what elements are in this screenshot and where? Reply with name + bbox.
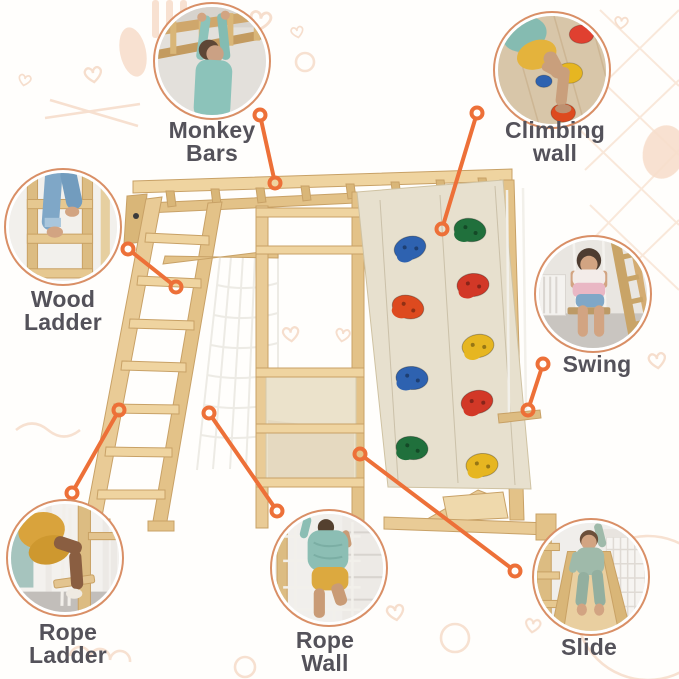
feature-label-slide: Slide bbox=[514, 636, 664, 659]
label-line: Ladder bbox=[0, 644, 143, 667]
feature-photo-rope-ladder bbox=[6, 499, 124, 617]
label-line: Bars bbox=[137, 142, 287, 165]
connector-climbing-wall bbox=[437, 108, 483, 235]
feature-label-wood-ladder: Wood Ladder bbox=[0, 288, 138, 335]
feature-label-climbing-wall: Climbing wall bbox=[480, 119, 630, 166]
feature-label-monkey-bars: Monkey Bars bbox=[137, 119, 287, 166]
connector-wood-ladder bbox=[123, 244, 182, 293]
swing-photo bbox=[539, 240, 647, 348]
climbing-wall-photo bbox=[498, 16, 606, 124]
label-line: Rope bbox=[296, 627, 354, 653]
label-line: Ladder bbox=[0, 311, 138, 334]
rope-wall-photo bbox=[275, 514, 383, 622]
rope-ladder-photo bbox=[11, 504, 119, 612]
feature-label-rope-wall: Rope Wall bbox=[250, 629, 400, 676]
label-line: Monkey bbox=[169, 117, 256, 143]
feature-label-rope-ladder: Rope Ladder bbox=[0, 621, 143, 668]
connector-rope-wall bbox=[204, 408, 283, 517]
feature-photo-rope-wall bbox=[270, 509, 388, 627]
label-line: Rope bbox=[39, 619, 97, 645]
feature-photo-swing bbox=[534, 235, 652, 353]
label-line: Swing bbox=[563, 351, 632, 377]
label-line: Slide bbox=[561, 634, 617, 660]
monkey-bars-photo bbox=[158, 7, 266, 115]
wood-ladder-photo bbox=[9, 173, 117, 281]
label-line: Climbing bbox=[505, 117, 605, 143]
slide-photo bbox=[537, 523, 645, 631]
label-line: Wall bbox=[250, 652, 400, 675]
feature-label-swing: Swing bbox=[522, 353, 672, 376]
feature-photo-climbing-wall bbox=[493, 11, 611, 129]
label-line: Wood bbox=[31, 286, 95, 312]
feature-photo-wood-ladder bbox=[4, 168, 122, 286]
product-features-infographic: Monkey Bars Climbing wall bbox=[0, 0, 679, 679]
feature-photo-slide bbox=[532, 518, 650, 636]
feature-photo-monkey-bars bbox=[153, 2, 271, 120]
connector-rope-ladder bbox=[67, 405, 125, 499]
label-line: wall bbox=[480, 142, 630, 165]
